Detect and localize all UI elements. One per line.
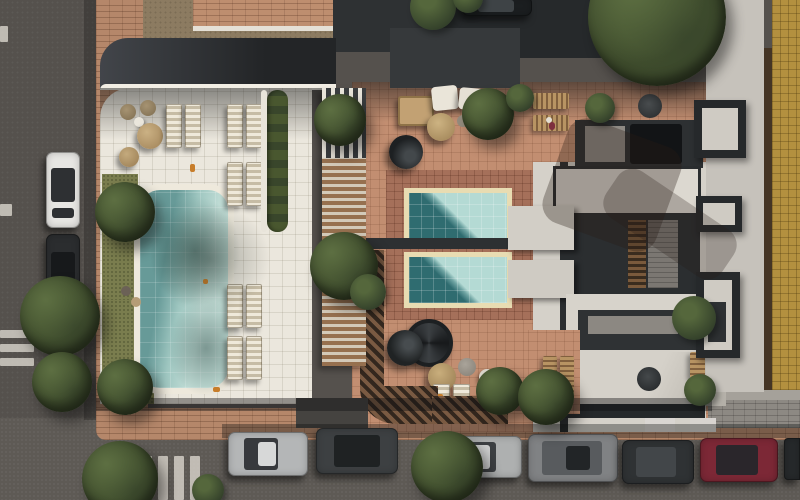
sun-lounger bbox=[246, 336, 262, 380]
street-tree bbox=[411, 431, 483, 500]
lane-dash bbox=[0, 204, 12, 216]
roof-band-dark bbox=[100, 38, 336, 90]
sun-lounger bbox=[227, 104, 243, 148]
outdoor-sofa-white bbox=[431, 85, 459, 112]
terrace-shrub bbox=[672, 296, 716, 340]
terrace-shrub bbox=[585, 93, 615, 123]
terrace-shrub bbox=[350, 274, 386, 310]
car-roof bbox=[258, 442, 276, 466]
alley-shadow-strip bbox=[764, 48, 772, 390]
roof-slab-gray-top bbox=[588, 316, 678, 334]
street-tree bbox=[95, 182, 155, 242]
crosswalk-bottom-stripe bbox=[174, 456, 184, 500]
towel-orange bbox=[213, 387, 220, 392]
parked-car-dark-partial bbox=[784, 438, 800, 480]
rattan-chair bbox=[140, 100, 156, 116]
terrace-tree bbox=[518, 369, 574, 425]
cocoon-daybed bbox=[387, 330, 423, 366]
cocoon-daybed bbox=[389, 135, 423, 169]
crosswalk-left-stripe bbox=[0, 358, 34, 366]
round-daybed bbox=[137, 123, 163, 149]
car-rear-glass bbox=[52, 208, 74, 218]
sun-lounger bbox=[166, 104, 182, 148]
planter-hedge bbox=[267, 90, 288, 232]
roof-dark-pools bbox=[390, 28, 520, 88]
terrace-shrub bbox=[684, 374, 716, 406]
person-seated bbox=[549, 122, 555, 130]
car-glass bbox=[716, 445, 758, 475]
round-daybed bbox=[119, 147, 139, 167]
street-tree bbox=[20, 276, 100, 356]
rattan-chair bbox=[120, 104, 136, 120]
parked-car-white bbox=[46, 152, 80, 228]
side-table-tan bbox=[131, 297, 141, 307]
street-tree bbox=[32, 352, 92, 412]
sun-lounger bbox=[185, 104, 201, 148]
plunge-pool-south bbox=[404, 252, 512, 308]
neighbor-roof-tan bbox=[193, 0, 333, 28]
building-south-shadow bbox=[96, 398, 712, 411]
terrace-shrub bbox=[506, 84, 534, 112]
shrub bbox=[192, 474, 224, 500]
aerial-render bbox=[0, 0, 800, 500]
street-tree bbox=[97, 359, 153, 415]
car-glass bbox=[334, 435, 380, 467]
tan-brick-building bbox=[772, 0, 800, 390]
parked-car-darkgray-suv bbox=[316, 428, 398, 474]
skylight-well bbox=[694, 100, 746, 158]
crosswalk-left-stripe bbox=[0, 344, 34, 352]
car-glass bbox=[636, 447, 676, 477]
car-sunroof bbox=[566, 446, 590, 470]
car-glass bbox=[51, 168, 75, 202]
fire-table-dark bbox=[638, 94, 662, 118]
wood-lounger bbox=[533, 93, 569, 109]
sun-lounger bbox=[246, 162, 262, 206]
neighbor-roof-edge bbox=[193, 26, 333, 31]
utility-box bbox=[508, 260, 574, 298]
towel-orange bbox=[190, 164, 195, 172]
parked-car-red bbox=[700, 438, 778, 482]
tree-shadow-deck bbox=[150, 204, 270, 314]
terrace-tree bbox=[476, 367, 524, 415]
parked-car-silver bbox=[228, 432, 308, 476]
terrace-tree bbox=[314, 94, 366, 146]
side-table-dark bbox=[121, 286, 131, 296]
fire-table-dark bbox=[637, 367, 661, 391]
car-glass bbox=[478, 0, 514, 12]
sun-lounger bbox=[246, 104, 262, 148]
parked-car-charcoal bbox=[622, 440, 694, 484]
crosswalk-bottom-stripe bbox=[158, 456, 168, 500]
parked-car-gray-suv bbox=[528, 434, 618, 482]
parasol-tan bbox=[427, 113, 455, 141]
table-gray bbox=[458, 358, 476, 376]
sun-lounger bbox=[227, 336, 243, 380]
lane-dash bbox=[0, 26, 8, 42]
sun-lounger bbox=[227, 162, 243, 206]
